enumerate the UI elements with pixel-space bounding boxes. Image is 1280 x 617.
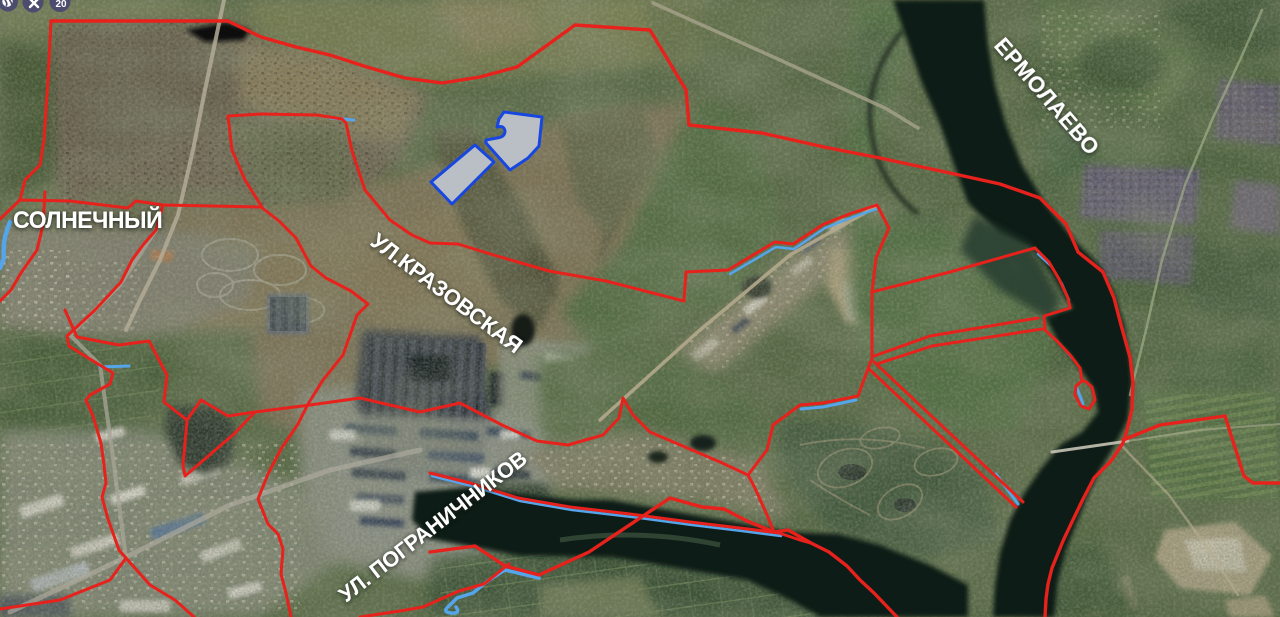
svg-text:СОЛНЕЧНЫЙ: СОЛНЕЧНЫЙ (13, 206, 162, 234)
svg-text:20: 20 (55, 0, 67, 10)
